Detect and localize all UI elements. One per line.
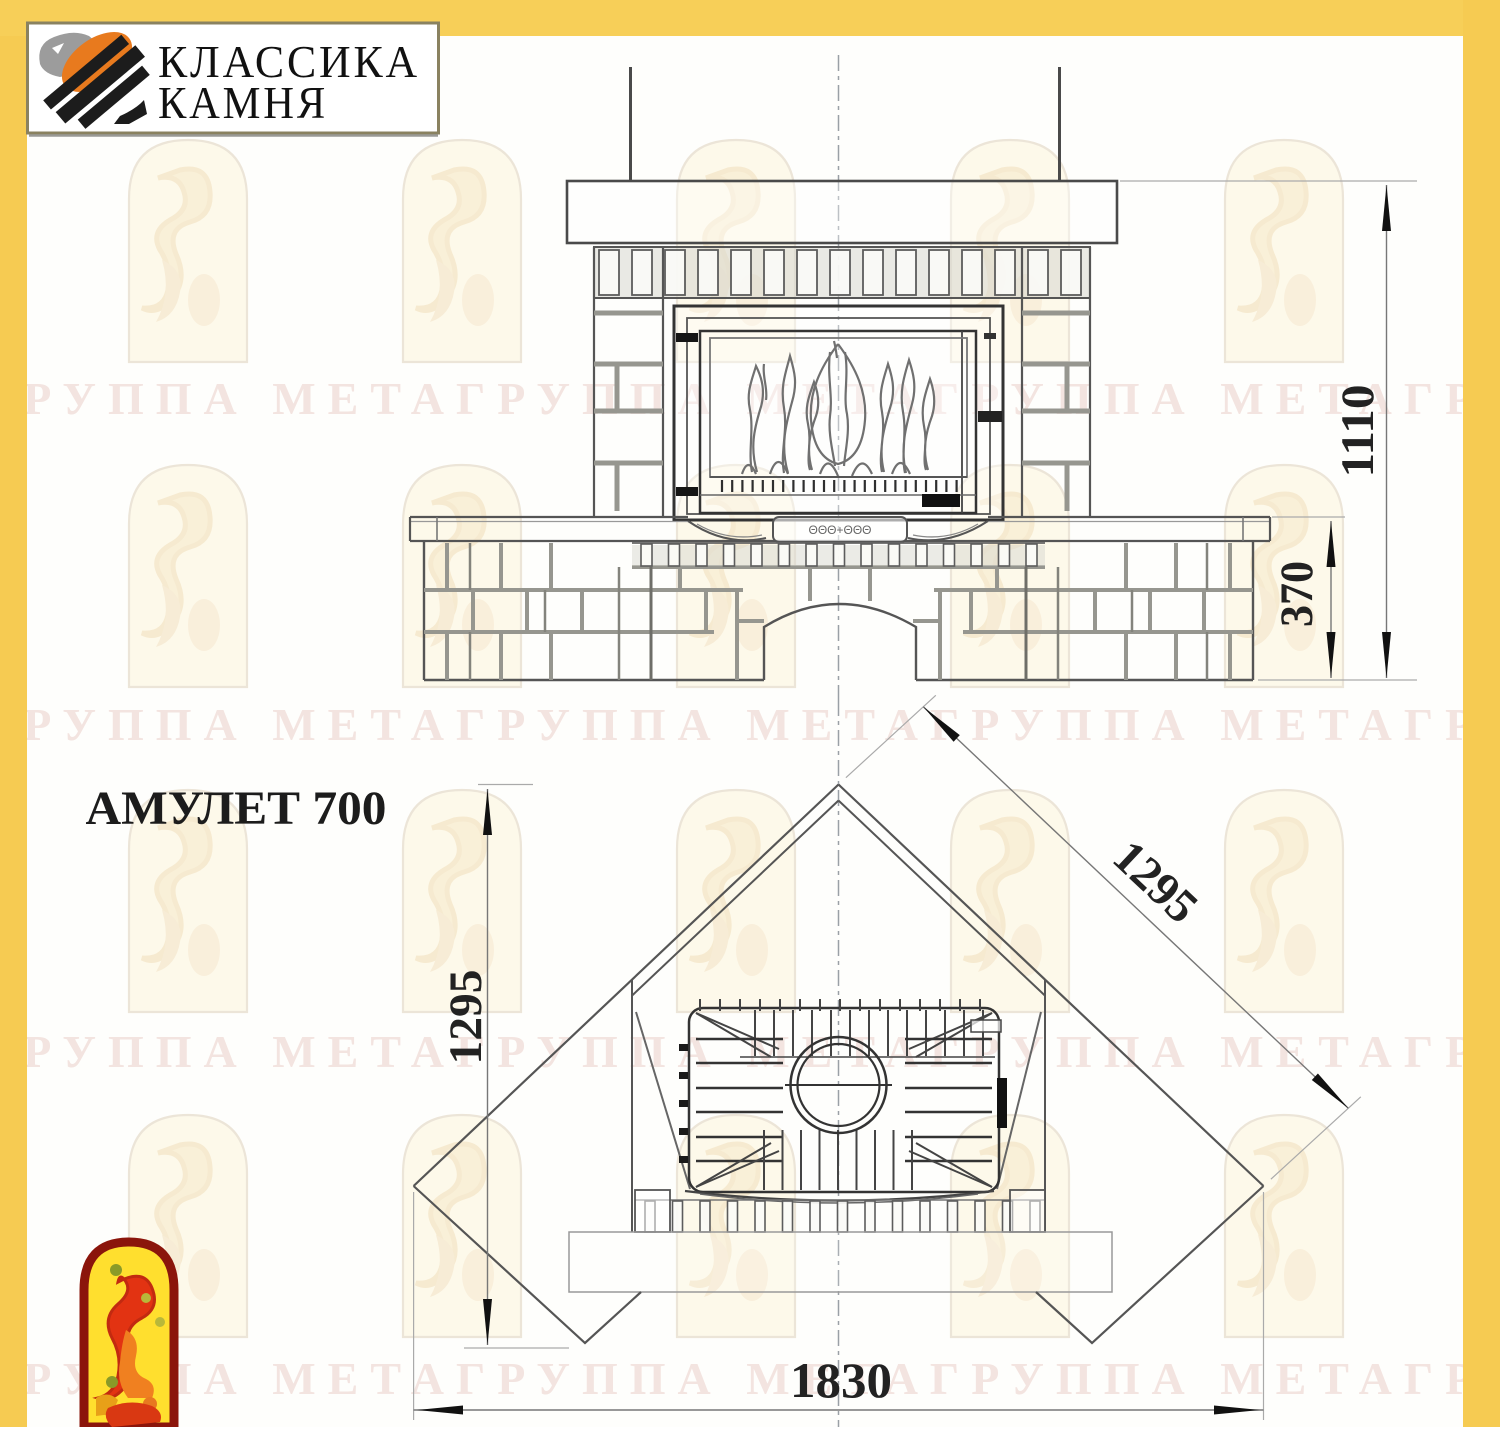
- svg-text:АМУЛЕТ 700: АМУЛЕТ 700: [86, 782, 387, 835]
- svg-text:ГРУППА МЕТАГРУППА МЕТАГРУППА М: ГРУППА МЕТАГРУППА МЕТАГРУППА МЕТАГРУППА …: [0, 699, 1500, 750]
- svg-text:ГРУППА МЕТАГРУППА МЕТАГРУППА М: ГРУППА МЕТАГРУППА МЕТАГРУППА МЕТАГРУППА …: [0, 1026, 1500, 1077]
- svg-text:1295: 1295: [440, 970, 492, 1065]
- svg-text:1110: 1110: [1332, 385, 1384, 478]
- svg-text:КАМНЯ: КАМНЯ: [158, 77, 328, 128]
- svg-text:ГРУППА МЕТАГРУППА МЕТАГРУППА М: ГРУППА МЕТАГРУППА МЕТАГРУППА МЕТАГРУППА …: [0, 1353, 1500, 1404]
- svg-text:370: 370: [1271, 561, 1323, 627]
- svg-text:1830: 1830: [790, 1352, 892, 1408]
- svg-text:ΘΘΘ+ΘΘΘ: ΘΘΘ+ΘΘΘ: [808, 523, 871, 537]
